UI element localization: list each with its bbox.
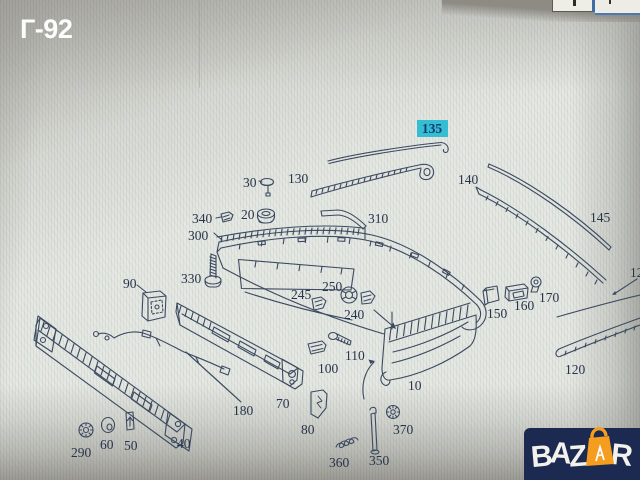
svg-text:Z: Z [568,439,589,473]
svg-text:R: R [609,438,634,473]
